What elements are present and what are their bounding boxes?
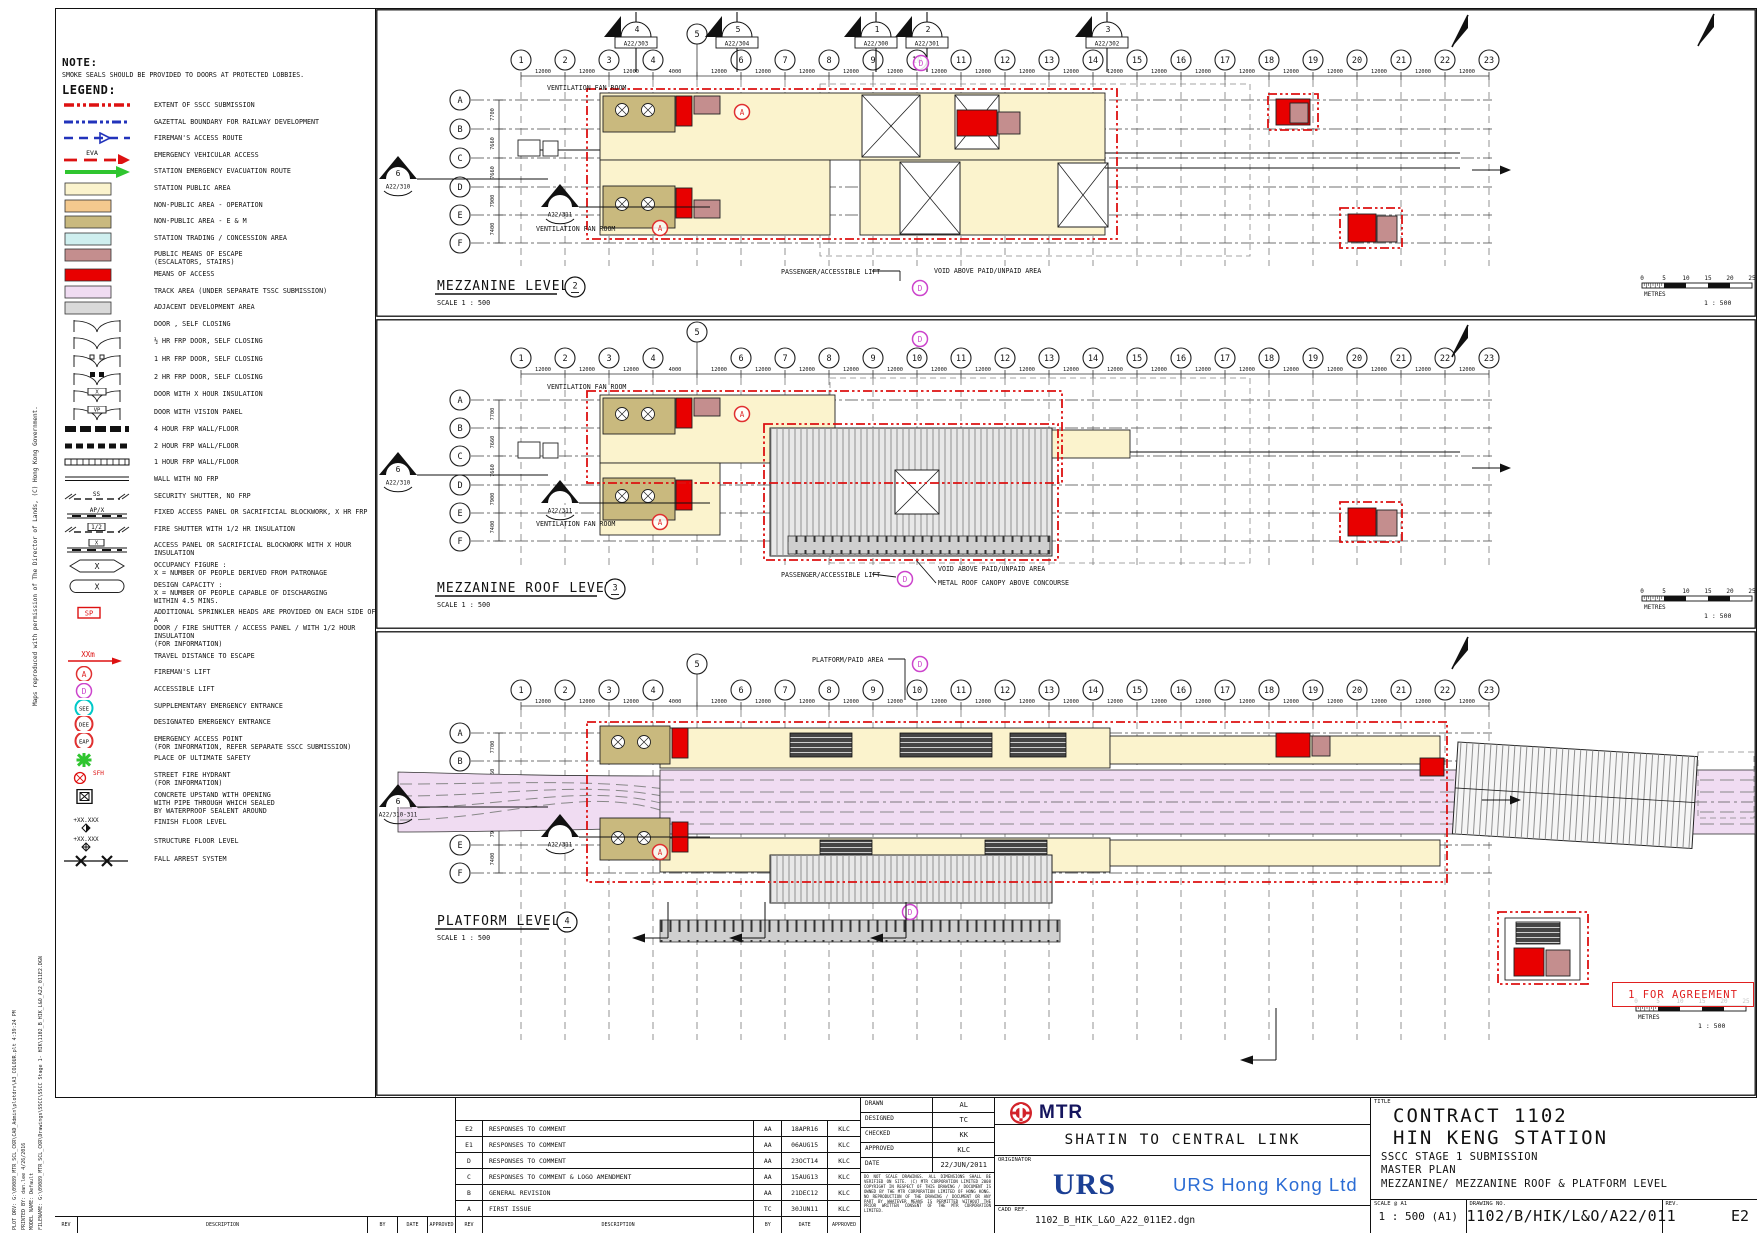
grid-spacing-label: 12000 xyxy=(1195,367,1211,373)
grid-spacing-label: 12000 xyxy=(1019,69,1035,75)
revision-header-description: DESCRIPTION xyxy=(77,1217,367,1233)
legend-item: 2 HR FRP DOOR, SELF CLOSING xyxy=(62,371,376,387)
grid-spacing-label: 12000 xyxy=(1239,69,1255,75)
area-escape xyxy=(1377,216,1397,242)
legend-symbol-apxi: X xyxy=(62,539,154,554)
grid-column-number: 19 xyxy=(1308,354,1318,364)
project-name: SHATIN TO CENTRAL LINK xyxy=(995,1125,1370,1156)
grid-spacing-label: 12000 xyxy=(1063,367,1079,373)
grid-spacing-label: 12000 xyxy=(843,699,859,705)
lift-letter: D xyxy=(908,908,913,917)
scalebar-seg xyxy=(1664,283,1686,288)
grid-spacing-label: 12000 xyxy=(711,367,727,373)
legend-item: XOCCUPANCY FIGURE :X = NUMBER OF PEOPLE … xyxy=(62,559,376,577)
plan-annotation: PASSENGER/ACCESSIBLE LIFT xyxy=(781,571,880,579)
grid-spacing-label: 12000 xyxy=(755,69,771,75)
approval-cell: KLC xyxy=(932,1143,994,1157)
grid-row-letter: A xyxy=(457,96,462,106)
row-dim-label: 7700 xyxy=(490,108,496,121)
scalebar-ratio: 1 : 500 xyxy=(1698,1022,1725,1030)
row-dim-label: 7660 xyxy=(490,166,496,179)
grid-column-number: 20 xyxy=(1352,686,1362,696)
legend-item: DEEDESIGNATED EMERGENCY ENTRANCE xyxy=(62,716,376,731)
plan-annotation: VOID ABOVE PAID/UNPAID AREA xyxy=(938,565,1045,573)
legend-symbol-line-gaz xyxy=(62,116,154,131)
grid-column-number: 18 xyxy=(1264,56,1274,66)
legend-label: FIREMAN'S ACCESS ROUTE xyxy=(154,132,243,142)
area-access xyxy=(1348,508,1376,536)
section-ref: A22/302 xyxy=(1095,41,1119,47)
grid-column-number: 13 xyxy=(1044,354,1054,364)
plan-bubble-number: 2 xyxy=(572,282,577,292)
lift-letter: D xyxy=(919,59,924,68)
svg-text:A: A xyxy=(82,670,87,679)
legend-label: DOOR , SELF CLOSING xyxy=(154,318,231,328)
grid-row-letter: E xyxy=(457,211,462,221)
scale-label: SCALE @ A1 xyxy=(1371,1200,1466,1207)
grid-spacing-label: 12000 xyxy=(1415,69,1431,75)
section-ref: A22/310 xyxy=(386,481,411,487)
grid-row-letter: F xyxy=(457,537,462,547)
section-number: 4 xyxy=(635,25,640,34)
grid-spacing-label: 12000 xyxy=(755,699,771,705)
revision-row: E2RESPONSES TO COMMENTAA18APR16KLC xyxy=(456,1120,860,1136)
section-ref: A22/311 xyxy=(548,509,573,515)
grid-spacing-label: 12000 xyxy=(535,699,551,705)
legend-label: FIXED ACCESS PANEL OR SACRIFICIAL BLOCKW… xyxy=(154,506,367,516)
walkway-ticks xyxy=(788,536,1050,554)
grid-row-letter: C xyxy=(457,154,462,164)
legend-label: CONCRETE UPSTAND WITH OPENINGWITH PIPE T… xyxy=(154,789,275,815)
svg-text:X: X xyxy=(95,582,100,591)
legend-symbol-door2 xyxy=(62,371,154,387)
drawing-no-value: 1102/B/HIK/L&O/A22/011 xyxy=(1467,1207,1662,1225)
legend-symbol-xxm: XXm xyxy=(62,650,154,665)
grid-column-number: 15 xyxy=(1132,56,1142,66)
legend-item: EXTENT OF SSCC SUBMISSION xyxy=(62,99,376,114)
grid-row-letter: D xyxy=(457,183,462,193)
grid-column-number: 3 xyxy=(606,56,611,66)
revision-header-date: DATE xyxy=(397,1217,427,1233)
svg-text:SFH: SFH xyxy=(93,770,104,777)
plan-scale-note: SCALE 1 : 500 xyxy=(437,934,490,942)
row-dim-label: 7660 xyxy=(490,137,496,150)
grid-spacing-label: 12000 xyxy=(1019,367,1035,373)
adjacent-development xyxy=(1452,742,1697,848)
legend-symbol-fs: 1/2 xyxy=(62,523,154,538)
legend-item: STATION EMERGENCY EVACUATION ROUTE xyxy=(62,165,376,180)
revision-header-rev: REV xyxy=(55,1217,77,1233)
grid-spacing-label: 12000 xyxy=(1371,367,1387,373)
scalebar-tick: 0 xyxy=(1640,275,1644,282)
area-access xyxy=(957,110,997,136)
lift-letter: A xyxy=(740,108,745,117)
area-escape xyxy=(1290,103,1308,123)
grid-column-number: 4 xyxy=(650,686,655,696)
legend-symbol-cD: D xyxy=(62,683,154,698)
lift-letter: D xyxy=(918,284,923,293)
plan-platform-level: 1234567891011121314151617181920212223120… xyxy=(376,631,1756,1096)
area-escape xyxy=(1312,736,1330,756)
legend-symbol-sw-track xyxy=(62,285,154,300)
section-number: 3 xyxy=(1106,25,1111,34)
grid-spacing-label: 12000 xyxy=(1283,367,1299,373)
revision-cell: 21DEC12 xyxy=(781,1185,827,1200)
legend-item: SFHSTREET FIRE HYDRANT(FOR INFORMATION) xyxy=(62,769,376,787)
grid-spacing-label: 12000 xyxy=(799,367,815,373)
legend-item: CONCRETE UPSTAND WITH OPENINGWITH PIPE T… xyxy=(62,789,376,815)
area-access xyxy=(676,188,692,218)
svg-text:X: X xyxy=(95,562,100,571)
grid-spacing-label: 12000 xyxy=(887,367,903,373)
section-ref: A22/311 xyxy=(548,843,573,849)
plan-scale-note: SCALE 1 : 500 xyxy=(437,299,490,307)
legend-item: AP/X FIXED ACCESS PANEL OR SACRIFICIAL B… xyxy=(62,506,376,521)
grid-spacing-label: 4000 xyxy=(669,69,682,75)
rev-label: REV. xyxy=(1663,1200,1758,1207)
legend-item: SEESUPPLEMENTARY EMERGENCY ENTRANCE xyxy=(62,700,376,715)
drawing-no-label: DRAWING NO. xyxy=(1467,1200,1662,1207)
grid-spacing-label: 12000 xyxy=(1239,367,1255,373)
grid-row-letter: D xyxy=(457,481,462,491)
legend-symbol-wall0 xyxy=(62,473,154,488)
legend-item: DACCESSIBLE LIFT xyxy=(62,683,376,698)
grid-spacing-label: 12000 xyxy=(1151,367,1167,373)
grid-spacing-label: 12000 xyxy=(799,69,815,75)
grid-column-number: 17 xyxy=(1220,686,1230,696)
scalebar-tick: 25 xyxy=(1748,275,1756,282)
approval-cell: DRAWN xyxy=(861,1098,932,1112)
title-cell: TITLE CONTRACT 1102 HIN KENG STATION SSC… xyxy=(1370,1098,1757,1233)
cadd-ref-value: 1102_B_HIK_L&O_A22_011E2.dgn xyxy=(995,1213,1370,1226)
grid-column-number: 13 xyxy=(1044,686,1054,696)
grid-row-letter: E xyxy=(457,509,462,519)
scalebar-tick: 5 xyxy=(1662,275,1666,282)
revision-cell: KLC xyxy=(827,1153,860,1168)
legend-label: TRACK AREA (UNDER SEPARATE TSSC SUBMISSI… xyxy=(154,285,327,295)
grid-row-letter: F xyxy=(457,239,462,249)
legend-item: XDESIGN CAPACITY :X = NUMBER OF PEOPLE C… xyxy=(62,579,376,605)
area-access xyxy=(1420,758,1444,776)
legend-label: EXTENT OF SSCC SUBMISSION xyxy=(154,99,255,109)
grid-column-number: 2 xyxy=(562,354,567,364)
legend-symbol-sw-access xyxy=(62,268,154,283)
grid-column-number: 6 xyxy=(738,56,743,66)
grid-spacing-label: 12000 xyxy=(887,699,903,705)
grid-spacing-label: 12000 xyxy=(535,69,551,75)
legend-item: ½ HR FRP DOOR, SELF CLOSING xyxy=(62,335,376,351)
grid-column-number: 7 xyxy=(782,686,787,696)
row-dim-label: 7400 xyxy=(490,223,496,236)
grid-spacing-label: 12000 xyxy=(623,699,639,705)
legend-label: TRAVEL DISTANCE TO ESCAPE xyxy=(154,650,255,660)
grid-spacing-label: 12000 xyxy=(1327,699,1343,705)
revision-cell: RESPONSES TO COMMENT & LOGO AMENDMENT xyxy=(482,1169,753,1184)
revision-header-rev: REV xyxy=(456,1217,482,1233)
area-access xyxy=(672,728,688,758)
plan-mezzanine-level: 1234567891011121314151617181920212223120… xyxy=(376,9,1756,317)
legend-title: LEGEND: xyxy=(62,83,116,97)
legend-symbol-door xyxy=(62,318,154,334)
legend-symbol-sw-em xyxy=(62,215,154,230)
legend-symbol-sw-operation xyxy=(62,199,154,214)
svg-text:D: D xyxy=(82,687,87,696)
row-dim-label: 7700 xyxy=(490,741,496,754)
legend-label: ACCESS PANEL OR SACRIFICIAL BLOCKWORK WI… xyxy=(154,539,376,557)
area-access xyxy=(676,398,692,428)
grid-column-number: 23 xyxy=(1484,686,1494,696)
grid-column-number: 4 xyxy=(650,354,655,364)
revision-cell: C xyxy=(456,1169,482,1184)
legend-label: SUPPLEMENTARY EMERGENCY ENTRANCE xyxy=(154,700,283,710)
grid-column-number: 9 xyxy=(870,354,875,364)
cadd-ref-cell: CADD REF. 1102_B_HIK_L&O_A22_011E2.dgn xyxy=(995,1206,1370,1226)
grid-column-number: 19 xyxy=(1308,686,1318,696)
revision-cell: AA xyxy=(753,1137,781,1152)
grid-column-number: 16 xyxy=(1176,686,1186,696)
legend-symbol-apx: AP/X xyxy=(62,506,154,521)
scalebar-tick: 20 xyxy=(1726,588,1734,595)
legend-label: NON-PUBLIC AREA - OPERATION xyxy=(154,199,263,209)
rev-cell: REV. E2 xyxy=(1662,1200,1758,1233)
revision-header-approved: APPROVED xyxy=(427,1217,455,1233)
scalebar-tick: 15 xyxy=(1704,275,1712,282)
revision-cell: 15AUG13 xyxy=(781,1169,827,1184)
approval-row: DESIGNEDTC xyxy=(861,1113,994,1128)
section-ref: A22/304 xyxy=(725,41,750,47)
legend-label: DESIGN CAPACITY :X = NUMBER OF PEOPLE CA… xyxy=(154,579,327,605)
legend-label: 2 HOUR FRP WALL/FLOOR xyxy=(154,440,239,450)
grid-spacing-label: 12000 xyxy=(579,367,595,373)
section-number: 6 xyxy=(396,465,401,474)
legend-item: GAZETTAL BOUNDARY FOR RAILWAY DEVELOPMEN… xyxy=(62,116,376,131)
legend-item: XDOOR WITH X HOUR INSULATION xyxy=(62,388,376,404)
revision-cell: E1 xyxy=(456,1137,482,1152)
legend-symbol-ss: SS xyxy=(62,490,154,505)
legend-symbol-doorx: VP xyxy=(62,406,154,422)
svg-text:EAP: EAP xyxy=(79,739,90,745)
revision-row: E1RESPONSES TO COMMENTAA06AUG15KLC xyxy=(456,1136,860,1152)
legend-label: DESIGNATED EMERGENCY ENTRANCE xyxy=(154,716,271,726)
drawing-sheet: NOTE: SMOKE SEALS SHOULD BE PROVIDED TO … xyxy=(0,0,1764,1238)
legend-symbol-cA: A xyxy=(62,666,154,681)
grid-spacing-label: 12000 xyxy=(1151,699,1167,705)
mtr-wordmark: MTR xyxy=(1039,1102,1083,1124)
revision-cell: 06AUG15 xyxy=(781,1137,827,1152)
legend-item: +XX.XXXFINISH FLOOR LEVEL xyxy=(62,816,376,833)
walkway-ticks xyxy=(660,920,1060,942)
approval-cell: APPROVED xyxy=(861,1143,932,1157)
grid-spacing-label: 12000 xyxy=(975,69,991,75)
grid-spacing-label: 12000 xyxy=(1151,69,1167,75)
scalebar-ratio: 1 : 500 xyxy=(1704,612,1731,620)
cadd-ref-label: CADD REF. xyxy=(995,1206,1370,1213)
area-em xyxy=(600,726,670,764)
plan-title: MEZZANINE ROOF LEVEL xyxy=(437,581,614,596)
grid-column-number: 15 xyxy=(1132,354,1142,364)
legend-item: NON-PUBLIC AREA - OPERATION xyxy=(62,199,376,214)
grid-column-number: 13 xyxy=(1044,56,1054,66)
grid-spacing-label: 12000 xyxy=(1107,69,1123,75)
svg-text:+XX.XXX: +XX.XXX xyxy=(73,836,99,843)
scalebar-ratio: 1 : 500 xyxy=(1704,299,1731,307)
revision-cell: KLC xyxy=(827,1169,860,1184)
grid-column-number: 6 xyxy=(738,686,743,696)
legend-label: FINISH FLOOR LEVEL xyxy=(154,816,226,826)
legend-item: X ACCESS PANEL OR SACRIFICIAL BLOCKWORK … xyxy=(62,539,376,557)
revision-table-left: REVDESCRIPTIONBYDATEAPPROVED xyxy=(55,1098,455,1233)
legend-label: PLACE OF ULTIMATE SAFETY xyxy=(154,752,251,762)
legend-symbol-arrow-green xyxy=(62,165,154,180)
legend-symbol-sw-public xyxy=(62,182,154,197)
row-dim-label: 7400 xyxy=(490,521,496,534)
grid-column-number: 17 xyxy=(1220,56,1230,66)
approval-row: CHECKEDKK xyxy=(861,1128,994,1143)
escalator-box xyxy=(900,733,992,757)
legend-symbol-line-fire xyxy=(62,132,154,147)
grid-column-number: 12 xyxy=(1000,56,1010,66)
grid-row-letter: A xyxy=(457,729,462,739)
revision-cell: AA xyxy=(753,1121,781,1136)
grid-column-number: 14 xyxy=(1088,354,1098,364)
grid-column-number: 12 xyxy=(1000,686,1010,696)
legend-label: STRUCTURE FLOOR LEVEL xyxy=(154,835,239,845)
legend-label: STREET FIRE HYDRANT(FOR INFORMATION) xyxy=(154,769,231,787)
row-dim-label: 7660 xyxy=(490,436,496,449)
area-access xyxy=(1276,733,1310,757)
grid-column-number: 14 xyxy=(1088,686,1098,696)
revision-cell: 23OCT14 xyxy=(781,1153,827,1168)
grid-spacing-label: 12000 xyxy=(799,699,815,705)
lift-letter: A xyxy=(658,224,663,233)
section-ref: A22/310 xyxy=(386,185,411,191)
grid-column-number: 5 xyxy=(694,30,699,40)
legend-label: FIREMAN'S LIFT xyxy=(154,666,210,676)
legend-item: STATION PUBLIC AREA xyxy=(62,182,376,197)
legend-item: EVA EMERGENCY VEHICULAR ACCESS xyxy=(62,149,376,164)
grid-spacing-label: 12000 xyxy=(623,367,639,373)
legend-item: +XX.XXXSTRUCTURE FLOOR LEVEL xyxy=(62,835,376,852)
revision-cell: B xyxy=(456,1185,482,1200)
title-bottom-row: SCALE @ A1 1 : 500 (A1) DRAWING NO. 1102… xyxy=(1371,1199,1757,1233)
grid-spacing-label: 12000 xyxy=(1327,367,1343,373)
legend-item: WALL WITH NO FRP xyxy=(62,473,376,488)
legend-symbol-sfl: +XX.XXX xyxy=(62,835,154,852)
for-agreement-stamp: 1 FOR AGREEMENT xyxy=(1612,982,1754,1007)
grid-column-number: 23 xyxy=(1484,56,1494,66)
grid-spacing-label: 12000 xyxy=(1371,699,1387,705)
contract-title: CONTRACT 1102 xyxy=(1371,1105,1757,1127)
row-dim-label: 7900 xyxy=(490,493,496,506)
plan-type-title: MASTER PLAN xyxy=(1371,1164,1757,1176)
revision-table: E2RESPONSES TO COMMENTAA18APR16KLCE1RESP… xyxy=(455,1098,860,1233)
revision-cell: A xyxy=(456,1201,482,1216)
note-title: NOTE: xyxy=(62,56,372,69)
grid-column-number: 21 xyxy=(1396,686,1406,696)
svg-text:+XX.XXX: +XX.XXX xyxy=(73,817,99,824)
section-number: 6 xyxy=(396,169,401,178)
svg-text:AP/X: AP/X xyxy=(90,507,105,514)
title-block-strip: REVDESCRIPTIONBYDATEAPPROVED E2RESPONSES… xyxy=(55,1097,1757,1232)
submission-title: SSCC STAGE 1 SUBMISSION xyxy=(1371,1151,1757,1163)
legend-symbol-door1 xyxy=(62,353,154,369)
approval-cell: DESIGNED xyxy=(861,1113,932,1127)
legend: EXTENT OF SSCC SUBMISSIONGAZETTAL BOUNDA… xyxy=(62,99,376,870)
legend-item: STATION TRADING / CONCESSION AREA xyxy=(62,232,376,247)
lift-letter: A xyxy=(658,518,663,527)
escalator-box xyxy=(1010,733,1066,757)
legend-label: STATION EMERGENCY EVACUATION ROUTE xyxy=(154,165,291,175)
scalebar xyxy=(1642,596,1752,601)
legend-symbol-doorx: X xyxy=(62,388,154,404)
structure-box xyxy=(518,442,540,458)
originator-label: ORIGINATOR xyxy=(995,1156,1370,1163)
plan-annotation: VENTILATION FAN ROOM xyxy=(547,383,626,391)
legend-label: WALL WITH NO FRP xyxy=(154,473,218,483)
grid-column-number: 8 xyxy=(826,686,831,696)
legend-label: STATION TRADING / CONCESSION AREA xyxy=(154,232,287,242)
grid-row-letter: B xyxy=(457,424,462,434)
legend-item: SPADDITIONAL SPRINKLER HEADS ARE PROVIDE… xyxy=(62,606,376,648)
legend-item: VPDOOR WITH VISION PANEL xyxy=(62,406,376,422)
grid-spacing-label: 12000 xyxy=(711,69,727,75)
legend-item: SSSECURITY SHUTTER, NO FRP xyxy=(62,490,376,505)
revision-cell: KLC xyxy=(827,1121,860,1136)
approval-row: APPROVEDKLC xyxy=(861,1143,994,1158)
grid-row-letter: B xyxy=(457,125,462,135)
legend-item: DOOR , SELF CLOSING xyxy=(62,318,376,334)
grid-column-number: 2 xyxy=(562,686,567,696)
legend-label: ACCESSIBLE LIFT xyxy=(154,683,214,693)
scalebar-tick: 0 xyxy=(1640,588,1644,595)
revision-cell: AA xyxy=(753,1169,781,1184)
section-number: 1 xyxy=(875,25,880,34)
revision-header-by: BY xyxy=(367,1217,397,1233)
plan-bubble-number: 3 xyxy=(612,584,617,594)
legend-symbol-line-sscc xyxy=(62,99,154,114)
legend-label: DOOR WITH VISION PANEL xyxy=(154,406,243,416)
grid-column-number: 16 xyxy=(1176,354,1186,364)
scalebar-tick: 10 xyxy=(1682,275,1690,282)
legend-label: EMERGENCY ACCESS POINT(FOR INFORMATION, … xyxy=(154,733,351,751)
scale-cell: SCALE @ A1 1 : 500 (A1) xyxy=(1371,1200,1466,1233)
map-permission-note: Maps reproduced with permission of The D… xyxy=(32,406,39,706)
approval-row: DATE22/JUN/2011 xyxy=(861,1158,994,1173)
legend-label: ADJACENT DEVELOPMENT AREA xyxy=(154,301,255,311)
grid-column-number: 5 xyxy=(694,328,699,338)
grid-row-letter: C xyxy=(457,452,462,462)
scalebar-seg xyxy=(1708,283,1730,288)
grid-column-number: 9 xyxy=(870,56,875,66)
legend-item: 1 HR FRP DOOR, SELF CLOSING xyxy=(62,353,376,369)
legend-label: NON-PUBLIC AREA - E & M xyxy=(154,215,247,225)
note-block: NOTE: SMOKE SEALS SHOULD BE PROVIDED TO … xyxy=(62,56,372,79)
grid-spacing-label: 12000 xyxy=(843,69,859,75)
grid-spacing-label: 12000 xyxy=(887,69,903,75)
revision-cell: E2 xyxy=(456,1121,482,1136)
grid-column-number: 3 xyxy=(606,686,611,696)
grid-column-number: 19 xyxy=(1308,56,1318,66)
structure-box xyxy=(543,443,558,458)
plan-title: MEZZANINE LEVEL xyxy=(437,279,569,294)
legend-label: ½ HR FRP DOOR, SELF CLOSING xyxy=(154,335,263,345)
legend-symbol-cDEE: DEE xyxy=(62,716,154,731)
area-public xyxy=(1052,430,1130,458)
revision-cell: KLC xyxy=(827,1185,860,1200)
scalebar-tick: 20 xyxy=(1726,275,1734,282)
legend-symbol-sfh: SFH xyxy=(62,769,154,784)
grid-column-number: 1 xyxy=(518,686,523,696)
